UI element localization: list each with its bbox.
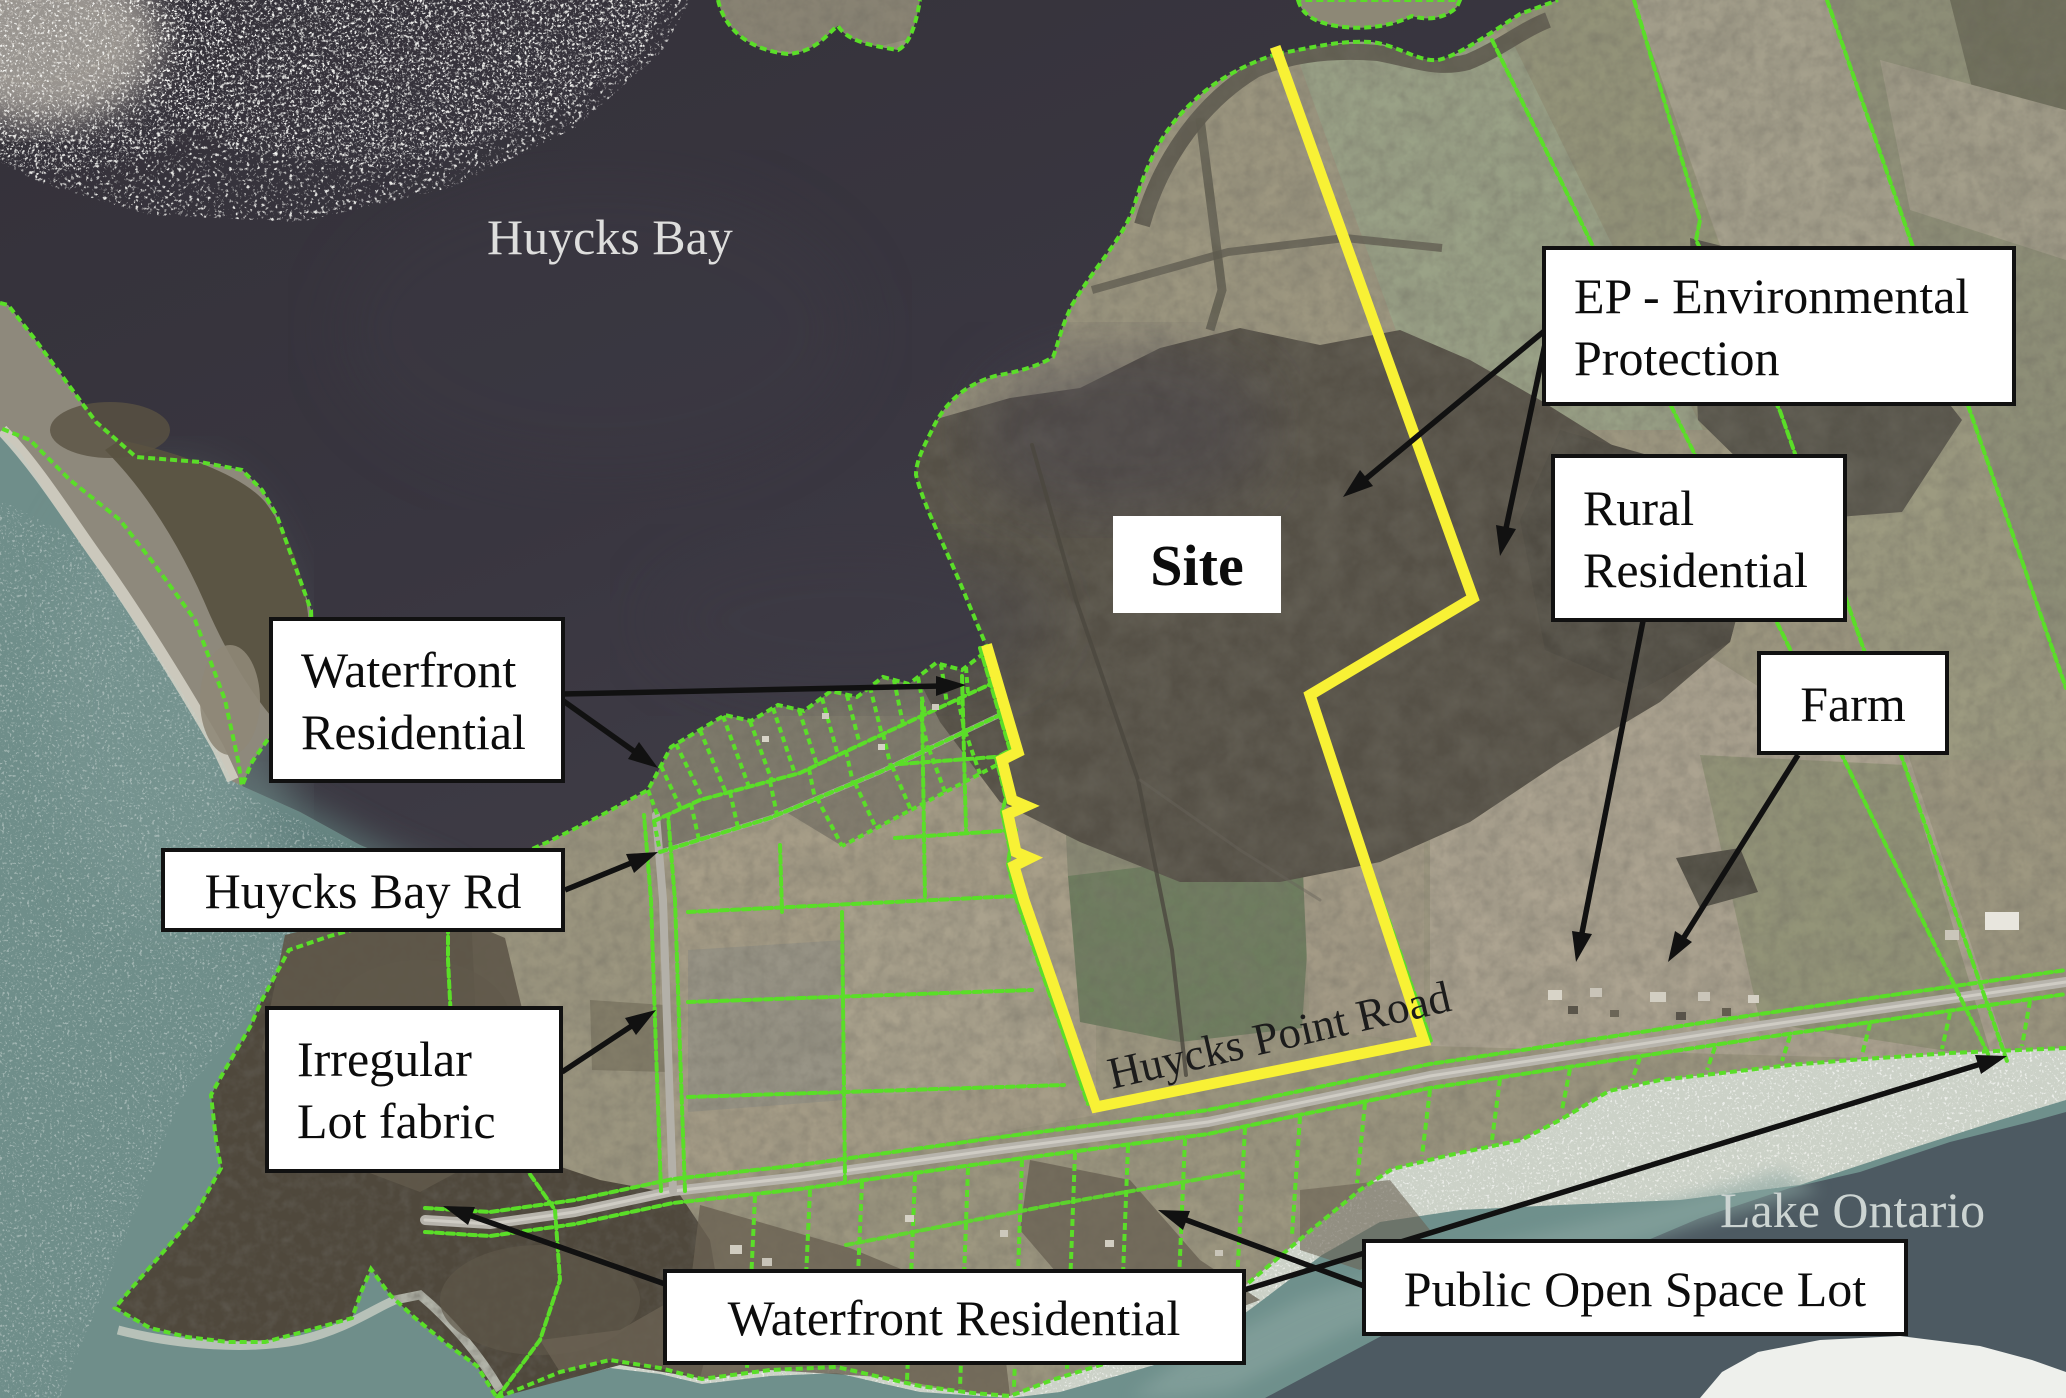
svg-text:Lot fabric: Lot fabric: [297, 1093, 496, 1149]
svg-text:Farm: Farm: [1800, 676, 1906, 732]
svg-text:Huycks Bay: Huycks Bay: [487, 209, 733, 265]
svg-text:Protection: Protection: [1574, 330, 1780, 386]
svg-text:Huycks Bay Rd: Huycks Bay Rd: [205, 863, 522, 919]
svg-text:Residential: Residential: [301, 704, 526, 760]
svg-text:Lake Ontario: Lake Ontario: [1720, 1182, 1985, 1238]
svg-text:Waterfront: Waterfront: [301, 642, 516, 698]
svg-text:Rural: Rural: [1583, 480, 1694, 536]
svg-text:Residential: Residential: [1583, 542, 1808, 598]
svg-text:Site: Site: [1150, 533, 1243, 598]
svg-text:EP - Environmental: EP - Environmental: [1574, 268, 1969, 324]
svg-text:Irregular: Irregular: [297, 1031, 472, 1087]
svg-text:Public Open Space Lot: Public Open Space Lot: [1404, 1261, 1867, 1317]
svg-text:Waterfront Residential: Waterfront Residential: [728, 1290, 1181, 1346]
